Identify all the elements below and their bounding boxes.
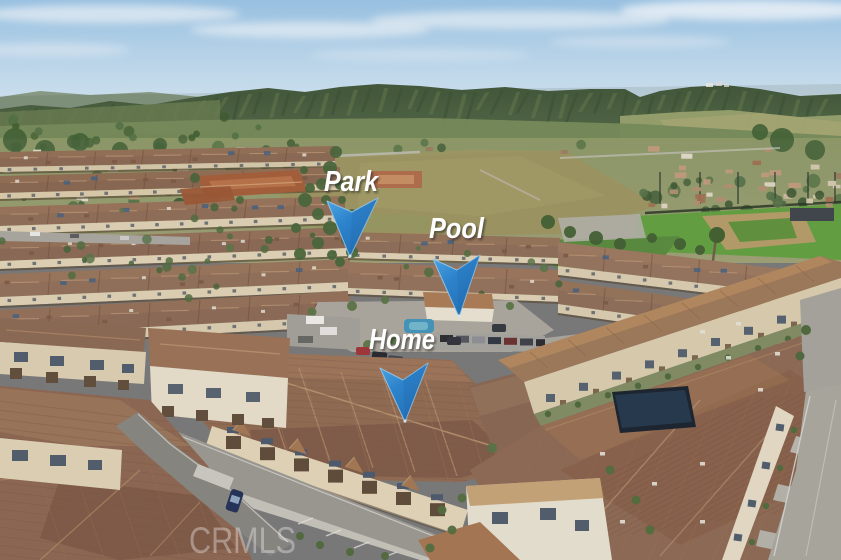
svg-text:Home: Home — [369, 324, 435, 356]
svg-text:Pool: Pool — [429, 213, 485, 245]
svg-text:CRMLS: CRMLS — [189, 520, 296, 560]
svg-text:Park: Park — [324, 166, 380, 198]
